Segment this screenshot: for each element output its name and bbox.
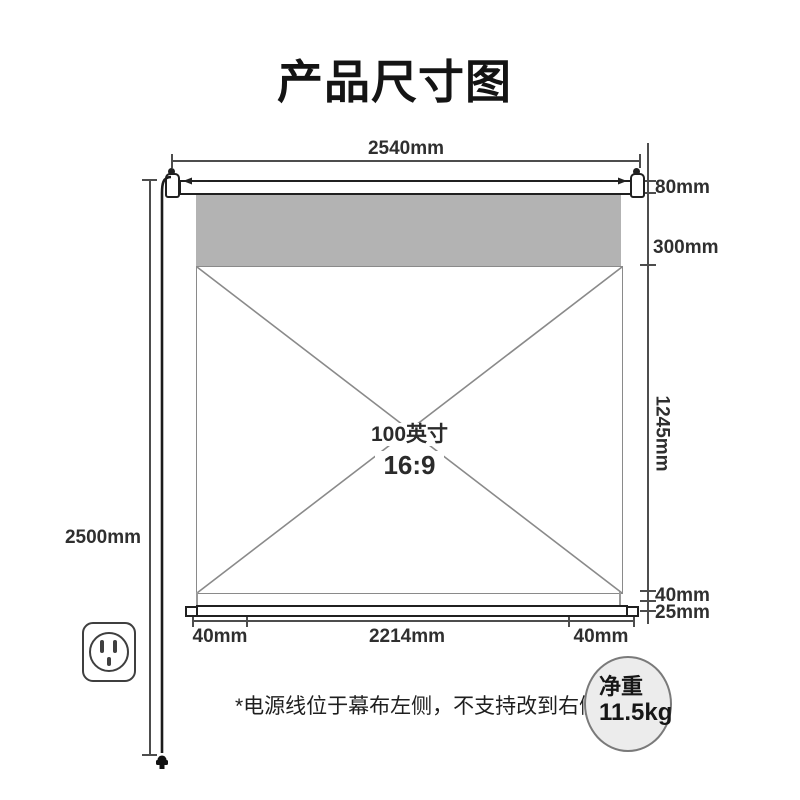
power-outlet-icon [82, 622, 136, 682]
outlet-slot-left [100, 640, 104, 653]
dim-tick [142, 754, 157, 756]
top-black-drop-panel [196, 195, 621, 266]
power-cord-footnote: *电源线位于幕布左侧，不支持改到右侧 [235, 690, 600, 720]
fabric-right-edge [619, 592, 621, 605]
dim-top-width-label: 2540mm [172, 139, 640, 158]
screen-size-label: 100英寸 [197, 423, 622, 446]
dim-view-height-label: 1245mm [653, 396, 672, 468]
bottom-weight-bar [196, 605, 628, 617]
dim-tick [142, 179, 157, 181]
dim-tick [640, 600, 656, 602]
dim-top-width-line [172, 160, 640, 162]
dim-tick [640, 264, 656, 266]
casing-right-cap [630, 173, 645, 198]
aspect-ratio-label: 16:9 [197, 451, 622, 480]
dim-case-height-label: 80mm [655, 178, 710, 197]
outlet-face [89, 632, 129, 672]
outlet-slot-ground [107, 657, 111, 666]
power-plug-icon [156, 756, 168, 770]
weight-value: 11.5kg [599, 699, 670, 728]
dim-tick [639, 154, 641, 168]
casing-left-knob [168, 168, 175, 175]
dim-right-line [647, 143, 649, 624]
screen-casing-bar [179, 180, 635, 195]
product-dimension-diagram: 产品尺寸图 2540mm 100英寸 16:9 80mm 300mm 1245m… [0, 0, 800, 800]
casing-left-cap [165, 173, 180, 198]
viewing-area: 100英寸 16:9 [196, 266, 623, 594]
casing-right-knob [633, 168, 640, 175]
net-weight-badge: 净重 11.5kg [584, 656, 672, 752]
dim-tick [640, 610, 656, 612]
dim-total-height-label: 2500mm [62, 528, 144, 547]
weight-label: 净重 [599, 674, 670, 699]
fabric-left-edge [196, 592, 198, 605]
outlet-slot-right [113, 640, 117, 653]
dim-bottom-left-margin-label: 40mm [192, 627, 248, 646]
dim-view-width-label: 2214mm [246, 627, 568, 646]
dim-tick [640, 590, 656, 592]
dim-top-drop-label: 300mm [653, 238, 719, 257]
page-title: 产品尺寸图 [277, 46, 512, 112]
dim-bottom-right-margin-label: 40mm [568, 627, 634, 646]
dim-left-line [149, 180, 151, 756]
dim-tick [171, 154, 173, 168]
power-cord [162, 177, 171, 753]
dim-bottom-bar-label: 25mm [655, 603, 710, 622]
